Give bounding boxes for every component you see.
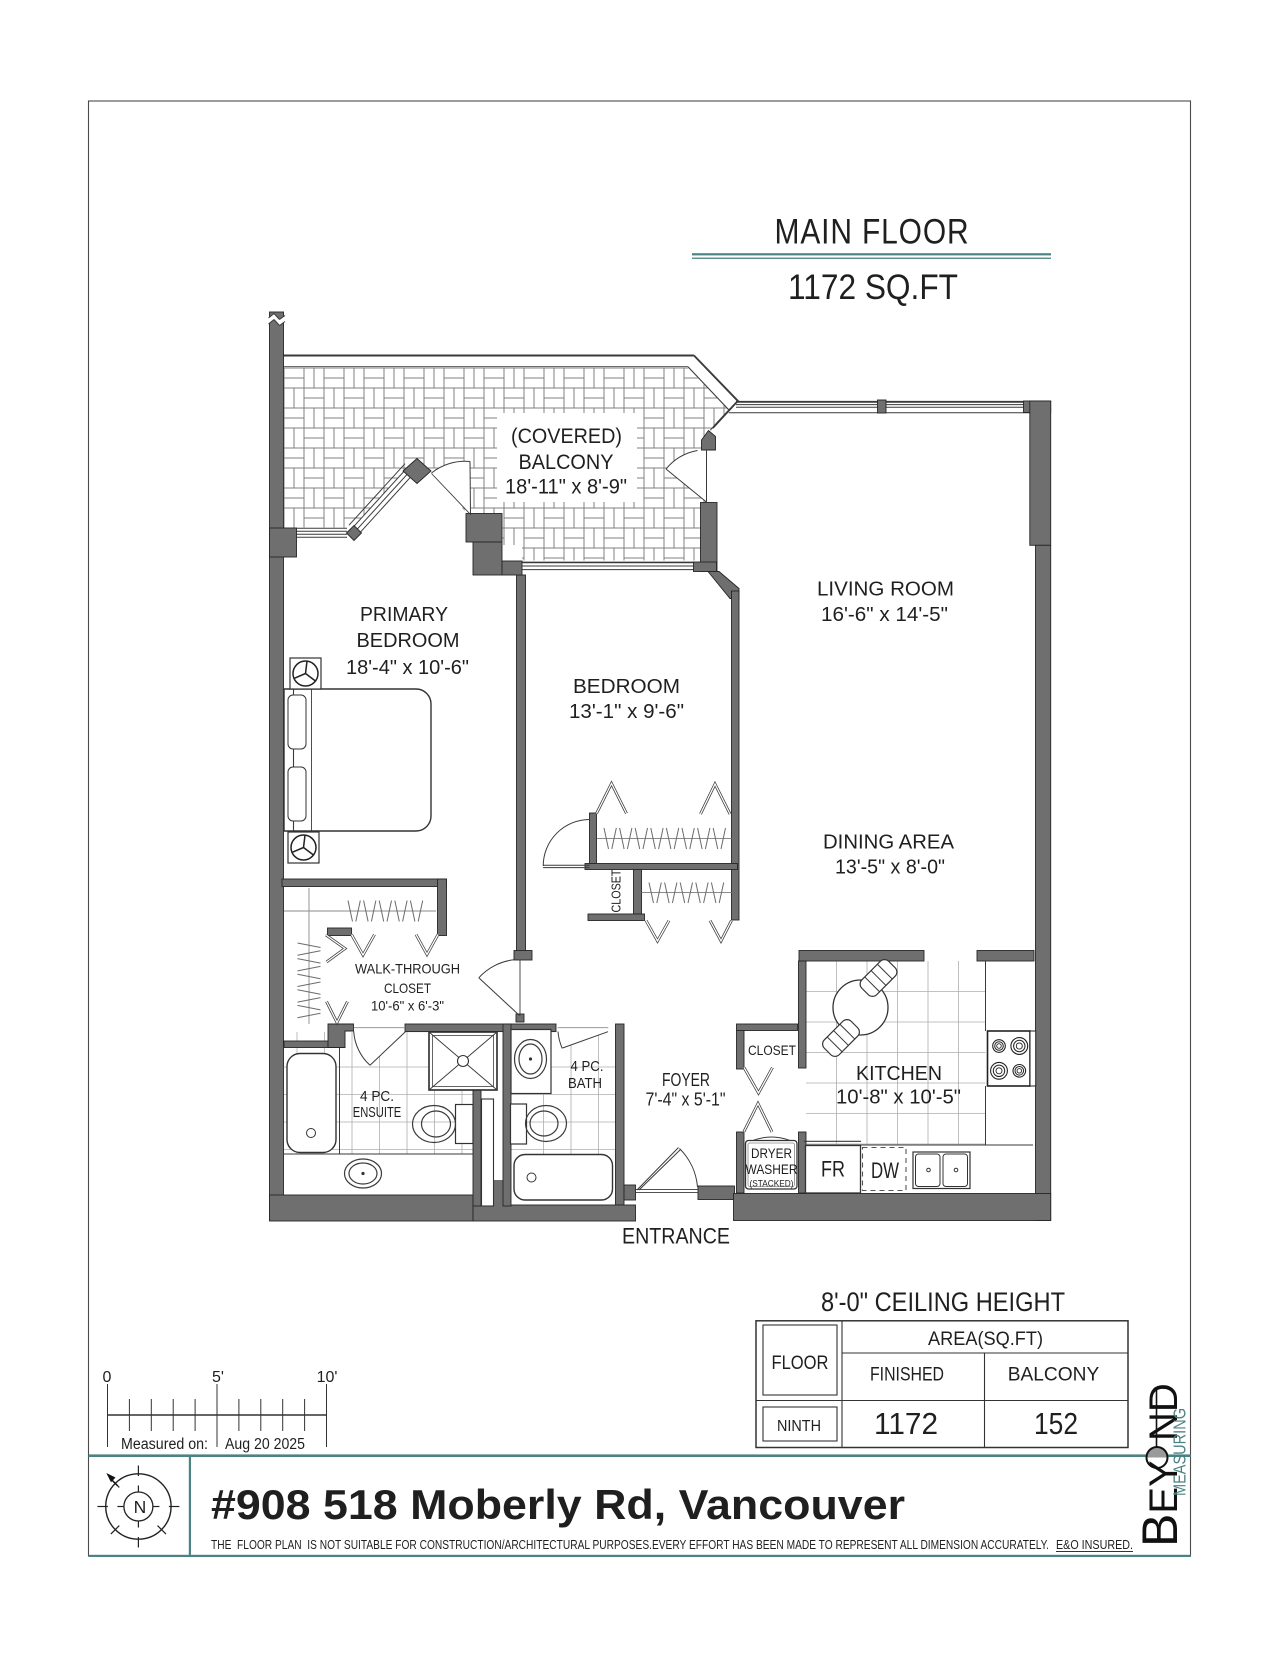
svg-text:10': 10' bbox=[317, 1369, 338, 1386]
svg-text:PRIMARY: PRIMARY bbox=[360, 603, 448, 626]
svg-text:AREA(SQ.FT): AREA(SQ.FT) bbox=[928, 1328, 1043, 1350]
svg-text:DRYER: DRYER bbox=[751, 1146, 792, 1161]
svg-text:FOYER: FOYER bbox=[662, 1070, 710, 1090]
svg-text:152: 152 bbox=[1034, 1406, 1078, 1441]
svg-text:Measured on:: Measured on: bbox=[121, 1436, 208, 1453]
svg-text:MAIN FLOOR: MAIN FLOOR bbox=[775, 213, 970, 252]
svg-text:FLOOR: FLOOR bbox=[772, 1353, 829, 1374]
svg-text:CLOSET: CLOSET bbox=[748, 1042, 796, 1058]
svg-text:NINTH: NINTH bbox=[777, 1418, 821, 1435]
svg-text:ENSUITE: ENSUITE bbox=[353, 1104, 402, 1121]
svg-text:BEDROOM: BEDROOM bbox=[573, 675, 680, 698]
svg-text:ENTRANCE: ENTRANCE bbox=[622, 1224, 730, 1249]
svg-text:WALK-THROUGH: WALK-THROUGH bbox=[355, 961, 460, 977]
svg-text:CLOSET: CLOSET bbox=[609, 869, 624, 912]
svg-text:BEDROOM: BEDROOM bbox=[357, 629, 460, 652]
svg-text:N: N bbox=[134, 1497, 147, 1517]
svg-text:E&O INSURED.: E&O INSURED. bbox=[1056, 1538, 1133, 1552]
svg-text:LIVING ROOM: LIVING ROOM bbox=[817, 578, 954, 601]
svg-text:MEASURING: MEASURING bbox=[1170, 1408, 1190, 1496]
svg-text:10'-6" x 6'-3": 10'-6" x 6'-3" bbox=[371, 998, 444, 1014]
svg-text:16'-6" x 14'-5": 16'-6" x 14'-5" bbox=[821, 603, 948, 626]
svg-text:18'-4" x 10'-6": 18'-4" x 10'-6" bbox=[346, 656, 469, 679]
svg-text:13'-1" x 9'-6": 13'-1" x 9'-6" bbox=[569, 700, 684, 723]
svg-text:KITCHEN: KITCHEN bbox=[856, 1062, 942, 1085]
svg-text:13'-5" x 8'-0": 13'-5" x 8'-0" bbox=[835, 856, 945, 879]
svg-text:7'-4" x 5'-1": 7'-4" x 5'-1" bbox=[646, 1090, 726, 1110]
svg-text:4 PC.: 4 PC. bbox=[360, 1088, 394, 1105]
svg-text:BATH: BATH bbox=[568, 1075, 602, 1092]
svg-text:BALCONY: BALCONY bbox=[1008, 1364, 1100, 1386]
svg-text:1172 SQ.FT: 1172 SQ.FT bbox=[788, 268, 958, 307]
svg-text:8'-0" CEILING HEIGHT: 8'-0" CEILING HEIGHT bbox=[821, 1287, 1065, 1317]
svg-text:THE FLOOR PLAN IS NOT SUITAB: THE FLOOR PLAN IS NOT SUITABLE FOR CONST… bbox=[211, 1538, 1049, 1552]
svg-text:WASHER: WASHER bbox=[746, 1162, 798, 1177]
svg-text:5': 5' bbox=[212, 1369, 224, 1386]
svg-text:DINING AREA: DINING AREA bbox=[823, 831, 954, 854]
svg-text:18'-11" x 8'-9": 18'-11" x 8'-9" bbox=[505, 476, 627, 499]
svg-text:1172: 1172 bbox=[874, 1406, 938, 1441]
svg-text:10'-8" x 10'-5": 10'-8" x 10'-5" bbox=[836, 1086, 961, 1109]
svg-text:(COVERED): (COVERED) bbox=[511, 425, 622, 448]
svg-text:CLOSET: CLOSET bbox=[384, 980, 431, 996]
svg-text:4 PC.: 4 PC. bbox=[571, 1058, 604, 1075]
svg-text:Aug 20 2025: Aug 20 2025 bbox=[225, 1436, 305, 1453]
svg-text:FR: FR bbox=[821, 1157, 845, 1182]
svg-text:DW: DW bbox=[871, 1158, 899, 1183]
svg-text:(STACKED): (STACKED) bbox=[750, 1179, 794, 1189]
svg-text:FINISHED: FINISHED bbox=[870, 1364, 944, 1386]
svg-text:BALCONY: BALCONY bbox=[519, 451, 614, 474]
svg-text:#908 518 Moberly Rd, Vancouver: #908 518 Moberly Rd, Vancouver bbox=[211, 1481, 905, 1528]
svg-text:0: 0 bbox=[103, 1369, 112, 1386]
